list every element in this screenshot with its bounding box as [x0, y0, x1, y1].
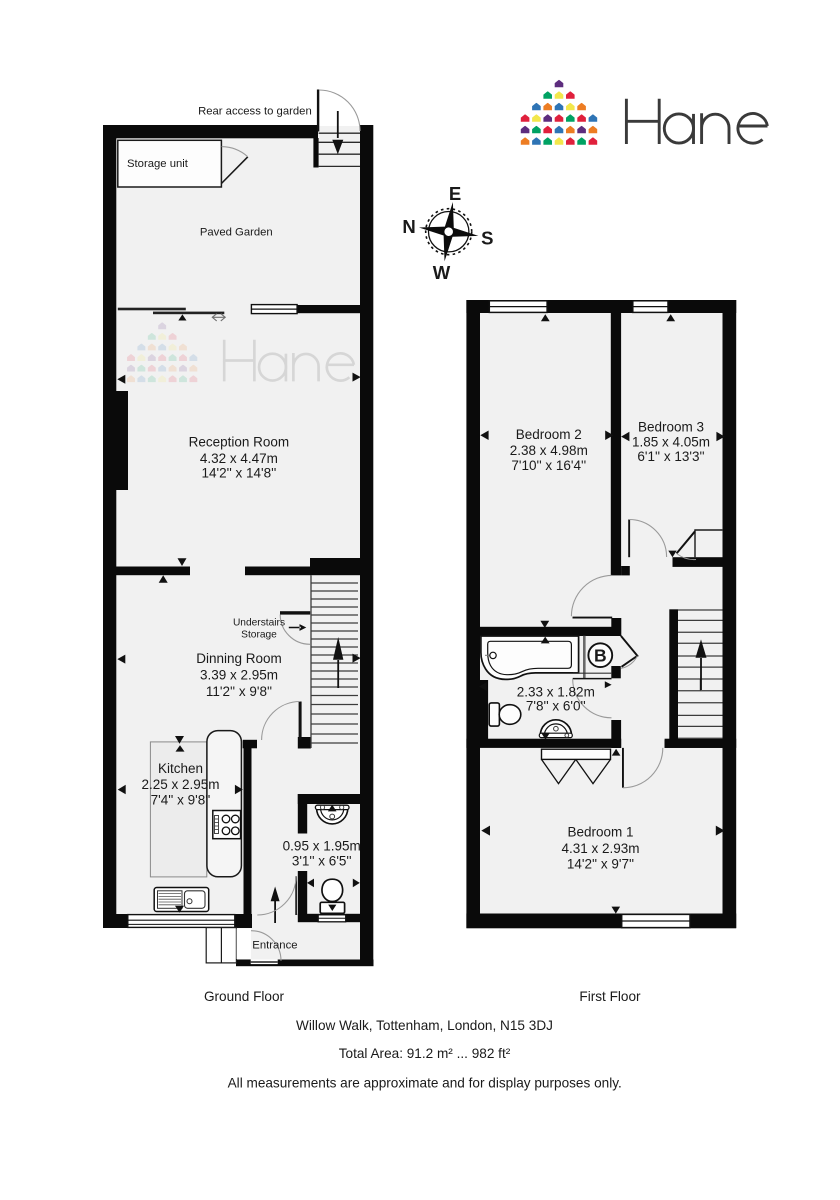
svg-text:Bedroom 1: Bedroom 1 — [567, 825, 633, 840]
svg-text:W: W — [433, 262, 451, 283]
svg-text:Total Area: 91.2 m² ... 982 ft: Total Area: 91.2 m² ... 982 ft² — [339, 1046, 511, 1061]
svg-text:3'1'' x 6'5'': 3'1'' x 6'5'' — [292, 853, 352, 868]
svg-text:First Floor: First Floor — [579, 989, 641, 1004]
svg-text:S: S — [481, 228, 493, 249]
svg-text:0.95 x 1.95m: 0.95 x 1.95m — [283, 838, 361, 853]
svg-text:2.25 x 2.95m: 2.25 x 2.95m — [141, 777, 219, 792]
svg-text:4.32 x 4.47m: 4.32 x 4.47m — [200, 451, 278, 466]
svg-text:2.33 x 1.82m: 2.33 x 1.82m — [517, 684, 595, 699]
svg-text:Storage unit: Storage unit — [127, 158, 189, 170]
svg-text:Kitchen: Kitchen — [158, 761, 203, 776]
svg-text:Willow Walk, Tottenham, London: Willow Walk, Tottenham, London, N15 3DJ — [296, 1018, 553, 1033]
svg-text:3.39 x 2.95m: 3.39 x 2.95m — [200, 668, 278, 683]
svg-text:2.38 x 4.98m: 2.38 x 4.98m — [510, 443, 588, 458]
svg-text:Paved Garden: Paved Garden — [200, 227, 273, 239]
svg-text:E: E — [449, 183, 461, 204]
svg-text:7'10'' x 16'4'': 7'10'' x 16'4'' — [511, 458, 586, 473]
svg-text:Ground Floor: Ground Floor — [204, 989, 285, 1004]
svg-text:7'8'' x 6'0'': 7'8'' x 6'0'' — [526, 699, 586, 714]
svg-text:Bedroom 3: Bedroom 3 — [638, 419, 704, 434]
svg-text:6'1'' x 13'3'': 6'1'' x 13'3'' — [637, 449, 704, 464]
svg-text:Entrance: Entrance — [252, 940, 297, 952]
svg-text:Understairs: Understairs — [233, 618, 285, 629]
svg-text:14'2'' x 9'7'': 14'2'' x 9'7'' — [567, 857, 634, 872]
svg-text:Bedroom 2: Bedroom 2 — [516, 427, 582, 442]
svg-text:Dinning Room: Dinning Room — [196, 651, 282, 666]
svg-text:7'4'' x 9'8'': 7'4'' x 9'8'' — [151, 792, 211, 807]
svg-text:Rear access to garden: Rear access to garden — [198, 105, 312, 117]
svg-text:4.31 x 2.93m: 4.31 x 2.93m — [561, 841, 639, 856]
svg-text:Reception Room: Reception Room — [189, 434, 290, 449]
svg-text:1.85 x 4.05m: 1.85 x 4.05m — [632, 434, 710, 449]
svg-text:11'2'' x 9'8'': 11'2'' x 9'8'' — [206, 684, 272, 699]
svg-text:Storage: Storage — [241, 629, 277, 640]
svg-text:B: B — [594, 646, 607, 666]
svg-text:14'2'' x 14'8'': 14'2'' x 14'8'' — [202, 466, 277, 481]
svg-text:N: N — [402, 216, 415, 237]
svg-text:All measurements are approxima: All measurements are approximate and for… — [228, 1076, 622, 1091]
